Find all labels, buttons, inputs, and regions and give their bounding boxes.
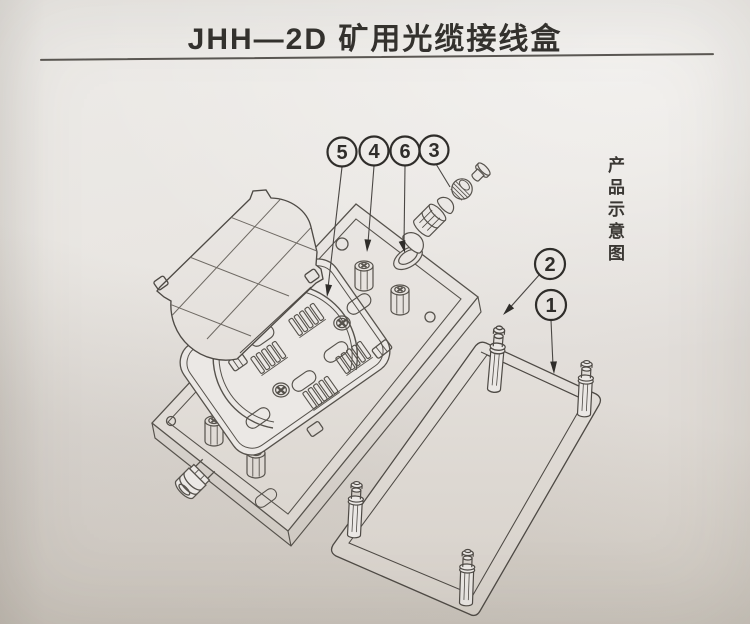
tray-screw-1: [334, 316, 350, 330]
callout-5: 5: [328, 138, 357, 167]
callout-3: 3: [420, 136, 449, 165]
callout-3-number: 3: [428, 140, 439, 162]
leader-line-1: [551, 320, 553, 366]
diagram-svg: 5 4 6 3 2 1: [0, 0, 750, 624]
callout-1-number: 1: [545, 295, 556, 317]
callout-1: 1: [536, 290, 566, 320]
callout-6: 6: [391, 137, 420, 166]
page-background: JHH—2D 矿用光缆接线盒 产品示意图: [0, 0, 750, 624]
callout-4: 4: [360, 137, 389, 166]
callout-5-number: 5: [336, 142, 347, 164]
callout-2: 2: [535, 249, 565, 279]
callout-2-number: 2: [544, 254, 555, 276]
callout-6-number: 6: [399, 141, 410, 163]
leader-arrowhead-1: [550, 361, 557, 374]
tray-screw-2: [273, 383, 289, 397]
gland-plug: [468, 161, 491, 184]
leader-line-6: [404, 166, 405, 245]
callout-4-number: 4: [368, 141, 380, 163]
leader-line-3: [436, 164, 450, 187]
